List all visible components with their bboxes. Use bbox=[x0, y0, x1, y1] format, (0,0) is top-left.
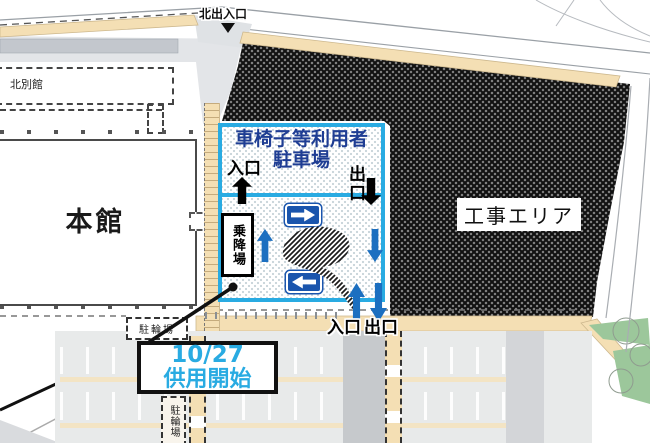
main-building-label: 本館 bbox=[66, 208, 126, 238]
opening-text: 供用開始 bbox=[163, 368, 251, 392]
construction-area-label: 工事エリア bbox=[457, 198, 581, 231]
wheelchair-parking-area: 車椅子等利用者 駐車場 入口 出口 乗降場 bbox=[218, 123, 385, 302]
one-way-right-sign bbox=[285, 204, 321, 226]
bicycle-parking-label: 駐輪場 bbox=[139, 321, 175, 336]
access-road bbox=[343, 331, 385, 443]
boarding-area-box: 乗降場 bbox=[221, 213, 254, 277]
bicycle-parking-box: 駐輪場 bbox=[126, 317, 188, 340]
north-gate-marker-icon bbox=[221, 23, 235, 33]
flow-up-arrow-icon bbox=[257, 229, 273, 262]
parking-stripes bbox=[60, 347, 532, 374]
bicycle-parking-label: 駐輪場 bbox=[166, 405, 181, 438]
bottom-entrance-label: 入口 bbox=[327, 319, 361, 338]
right-arrow-icon bbox=[291, 209, 315, 222]
left-arrow-icon bbox=[292, 276, 316, 289]
parking-path-row bbox=[60, 423, 515, 428]
top-entrance-label: 入口 bbox=[227, 160, 261, 179]
flow-down-arrow-icon bbox=[367, 229, 383, 262]
north-annex-label: 北別館 bbox=[10, 78, 43, 91]
entrance-up-arrow-icon bbox=[232, 177, 252, 204]
annex-dashed-line bbox=[0, 109, 162, 111]
lot-lane bbox=[506, 331, 544, 443]
north-gate-label: 北出入口 bbox=[199, 7, 247, 21]
bicycle-parking-box-vertical: 駐輪場 bbox=[161, 396, 186, 443]
opening-date: 10/27 bbox=[171, 343, 243, 368]
opening-date-callout: 10/27 供用開始 bbox=[137, 341, 278, 394]
north-annex-building: 北別館 bbox=[0, 67, 174, 105]
bottom-exit-label: 出口 bbox=[364, 319, 398, 338]
fence-row bbox=[0, 130, 206, 134]
one-way-left-sign bbox=[286, 271, 322, 293]
boarding-area-label: 乗降場 bbox=[228, 224, 247, 266]
crosswalk-strip bbox=[385, 331, 402, 443]
parking-stripes bbox=[60, 392, 532, 420]
main-building: 本館 bbox=[0, 139, 197, 306]
canopy-strip bbox=[0, 39, 178, 53]
crosswalk-ticks bbox=[205, 312, 337, 319]
parking-path-row bbox=[60, 377, 515, 382]
site-map: 北出入口 北別館 本館 駐輪場 駐輪場 工事エリア 車椅子等利用者 駐車場 入口… bbox=[0, 0, 650, 443]
